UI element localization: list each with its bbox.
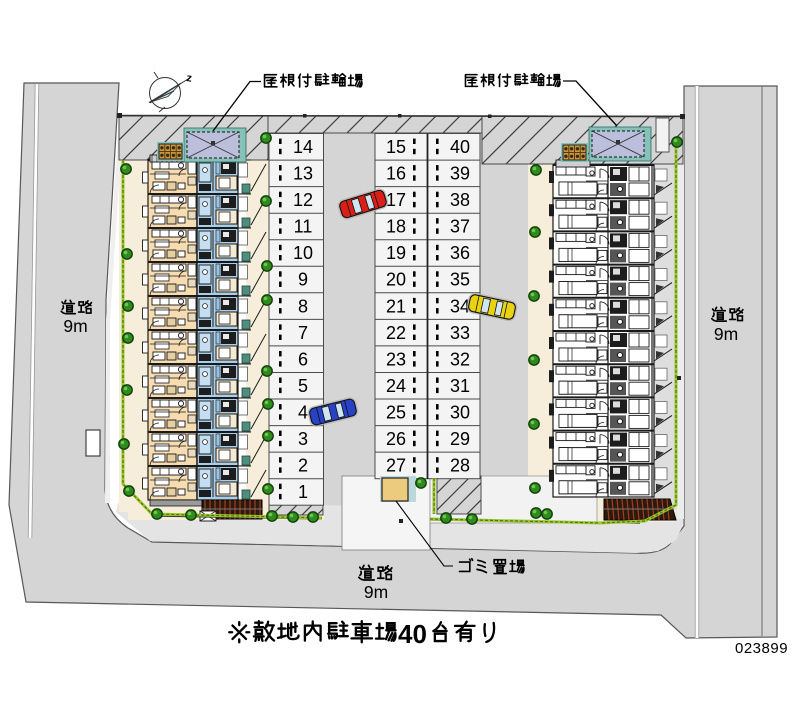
svg-text:32: 32 <box>450 349 470 369</box>
svg-text:39: 39 <box>450 164 470 184</box>
svg-text:16: 16 <box>386 164 406 184</box>
svg-text:40: 40 <box>450 137 470 157</box>
svg-text:6: 6 <box>298 349 308 369</box>
svg-text:1: 1 <box>298 482 308 502</box>
svg-text:10: 10 <box>293 243 313 263</box>
svg-text:12: 12 <box>293 190 313 210</box>
svg-text:8: 8 <box>298 296 308 316</box>
svg-text:3: 3 <box>298 429 308 449</box>
svg-text:15: 15 <box>386 137 406 157</box>
svg-text:20: 20 <box>386 270 406 290</box>
svg-text:33: 33 <box>450 323 470 343</box>
svg-text:17: 17 <box>386 190 406 210</box>
svg-text:28: 28 <box>450 456 470 476</box>
svg-text:9m: 9m <box>63 316 87 336</box>
svg-text:18: 18 <box>386 217 406 237</box>
svg-text:31: 31 <box>450 376 470 396</box>
svg-text:35: 35 <box>450 270 470 290</box>
svg-text:25: 25 <box>386 403 406 423</box>
svg-text:21: 21 <box>386 296 406 316</box>
svg-text:9: 9 <box>298 270 308 290</box>
svg-text:7: 7 <box>298 323 308 343</box>
svg-text:19: 19 <box>386 243 406 263</box>
svg-text:37: 37 <box>450 217 470 237</box>
svg-text:9m: 9m <box>364 582 388 602</box>
svg-text:29: 29 <box>450 429 470 449</box>
svg-text:4: 4 <box>298 403 308 423</box>
svg-text:23: 23 <box>386 349 406 369</box>
svg-text:14: 14 <box>293 137 313 157</box>
svg-text:27: 27 <box>386 456 406 476</box>
svg-text:13: 13 <box>293 164 313 184</box>
svg-text:30: 30 <box>450 403 470 423</box>
svg-text:26: 26 <box>386 429 406 449</box>
svg-text:11: 11 <box>294 217 313 237</box>
svg-text:22: 22 <box>386 323 406 343</box>
svg-text:5: 5 <box>298 376 308 396</box>
svg-text:36: 36 <box>450 243 470 263</box>
svg-text:2: 2 <box>298 456 308 476</box>
svg-text:023899: 023899 <box>735 640 788 657</box>
svg-text:40: 40 <box>398 619 427 649</box>
svg-text:24: 24 <box>386 376 406 396</box>
svg-text:38: 38 <box>450 190 470 210</box>
svg-text:9m: 9m <box>714 324 738 344</box>
